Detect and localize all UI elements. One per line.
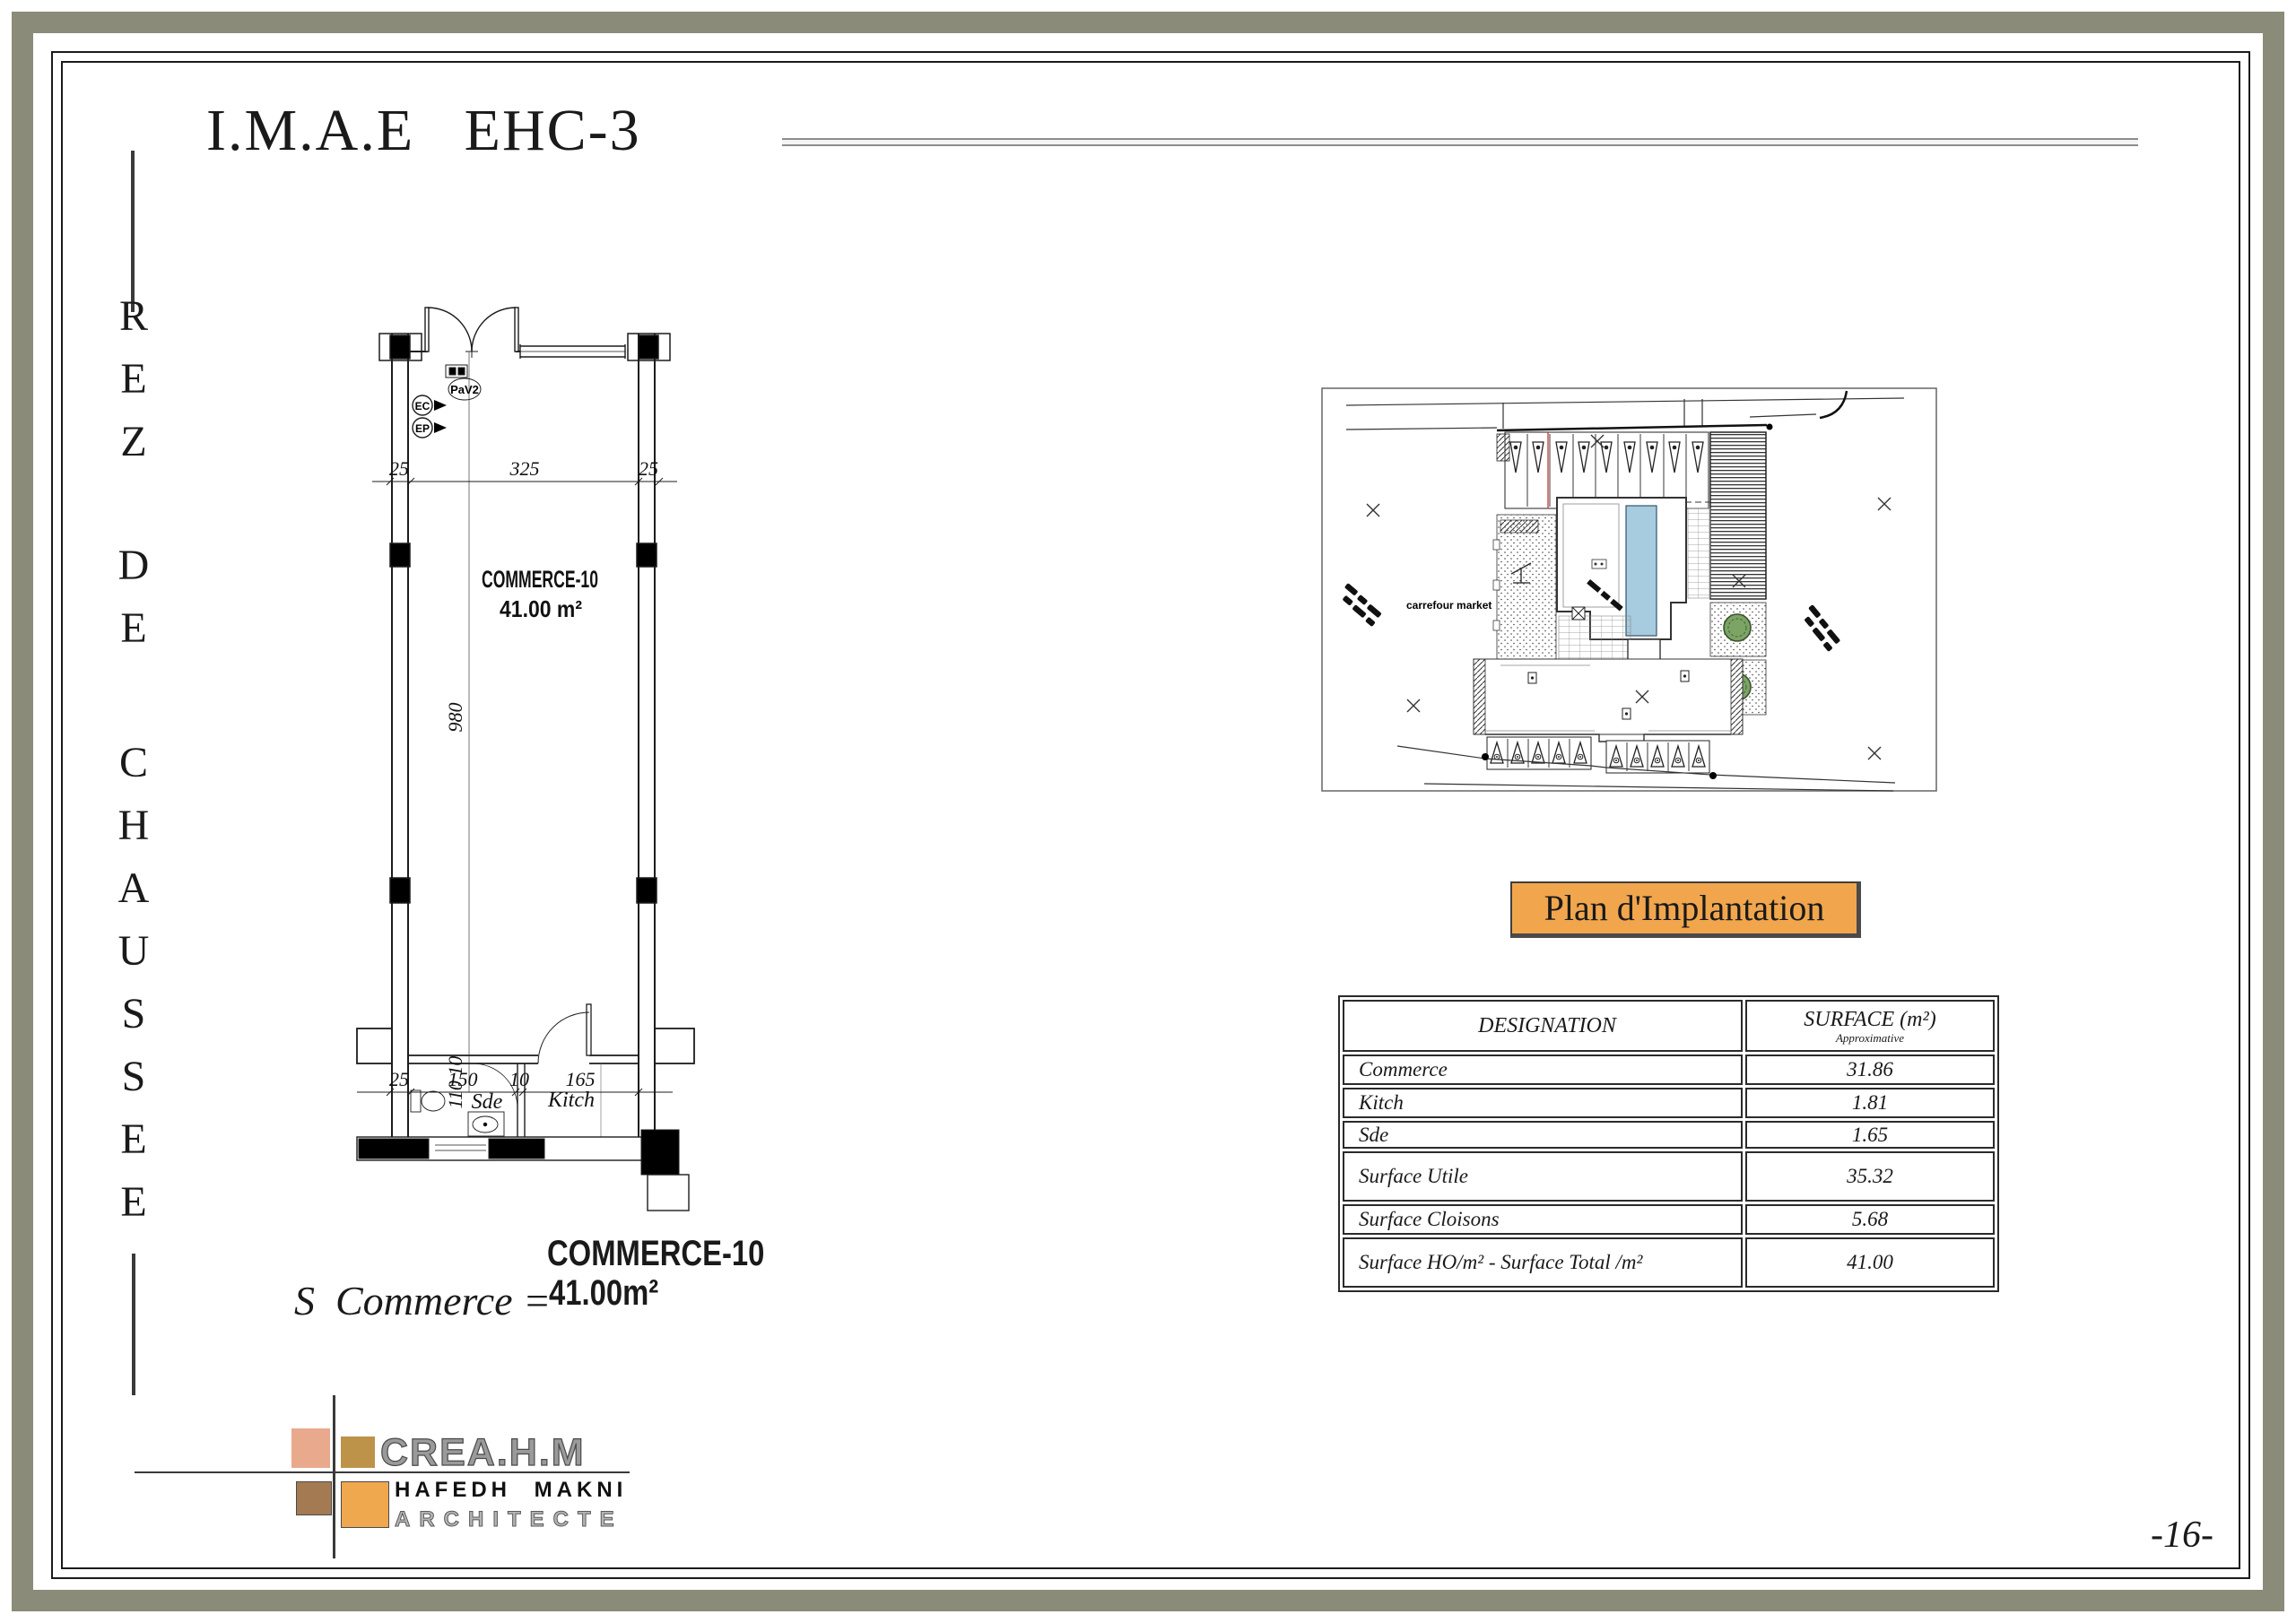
dim-side: 110 10 xyxy=(444,1056,466,1109)
site-plan-badge: Plan d'Implantation xyxy=(1510,881,1861,938)
table-header-designation: DESIGNATION xyxy=(1343,1000,1743,1052)
logo-square-gold xyxy=(341,1436,375,1468)
caption-formula: S Commerce = xyxy=(294,1277,551,1324)
architect-title: ARCHITECTE xyxy=(395,1507,623,1532)
dim-top-left: 25 xyxy=(389,457,409,480)
caption-room-name: COMMERCE-10 xyxy=(547,1234,764,1274)
bottom-wall xyxy=(357,1130,689,1211)
table-row: Surface HO/m² - Surface Total /m² 41.00 xyxy=(1343,1237,1995,1288)
room-area: 41.00 m² xyxy=(500,595,582,622)
side-rule-bottom xyxy=(132,1254,135,1395)
dim-top-mid: 325 xyxy=(509,457,540,480)
room-name: COMMERCE-10 xyxy=(482,566,598,593)
logo-square-salmon xyxy=(291,1428,330,1468)
logo-brand: CREA.H.M xyxy=(380,1431,586,1475)
site-plan-drawing: carrefour market xyxy=(1321,387,1938,793)
sheet-title: I.M.A.E EHC-3 xyxy=(206,97,641,165)
architect-name: HAFEDH MAKNI xyxy=(395,1478,627,1503)
dim-b4: 165 xyxy=(566,1068,596,1090)
table-row: Kitch 1.81 xyxy=(1343,1088,1995,1118)
pav2-label: PaV2 xyxy=(450,383,479,396)
electrical-panel-icon xyxy=(446,365,467,378)
logo-square-orange xyxy=(341,1481,389,1528)
ramp-hatch xyxy=(1710,432,1766,599)
surface-table: DESIGNATION SURFACE (m²) Approximative C… xyxy=(1338,995,1999,1292)
floor-level-label: R E Z D E C H A U S S E E xyxy=(104,285,163,1234)
store-label: carrefour market xyxy=(1406,599,1492,612)
ep-arrow-icon xyxy=(434,422,447,433)
table-header-sub: Approximative xyxy=(1752,1032,1987,1045)
wc-icon xyxy=(411,1090,445,1112)
sink-icon xyxy=(468,1112,504,1136)
header-rule xyxy=(782,138,2138,146)
forecourt-plaza xyxy=(1474,659,1743,742)
ec-arrow-icon xyxy=(434,400,447,411)
kitch-label: Kitch xyxy=(547,1089,595,1112)
ep-label: EP xyxy=(415,422,430,435)
sde-label: Sde xyxy=(472,1090,503,1114)
dim-height: 980 xyxy=(444,703,466,733)
drawing-sheet: { "title": "I.M.A.E EHC-3", "side": { "l… xyxy=(0,0,2296,1623)
logo-crossline xyxy=(333,1395,335,1558)
page-number: -16- xyxy=(2151,1514,2213,1557)
floor-plan-drawing: 25 325 25 980 PaV2 EC EP COMMERCE-10 41.… xyxy=(350,296,709,1219)
table-row: Sde 1.65 xyxy=(1343,1121,1995,1149)
dim-b1: 25 xyxy=(389,1068,409,1090)
logo-square-brown xyxy=(296,1481,332,1515)
table-row: Surface Cloisons 5.68 xyxy=(1343,1204,1995,1235)
table-row: Commerce 31.86 xyxy=(1343,1055,1995,1085)
double-door-icon xyxy=(425,308,518,358)
caption-room-area: 41.00m² xyxy=(549,1273,658,1314)
kitchen-door-icon xyxy=(538,1004,591,1063)
table-row: Surface Utile 35.32 xyxy=(1343,1151,1995,1202)
table-header-surface: SURFACE (m²) Approximative xyxy=(1745,1000,1995,1052)
dim-b3: 10 xyxy=(509,1068,529,1090)
ec-label: EC xyxy=(415,400,430,412)
dim-top-right: 25 xyxy=(639,457,658,480)
window-icon xyxy=(520,344,625,359)
